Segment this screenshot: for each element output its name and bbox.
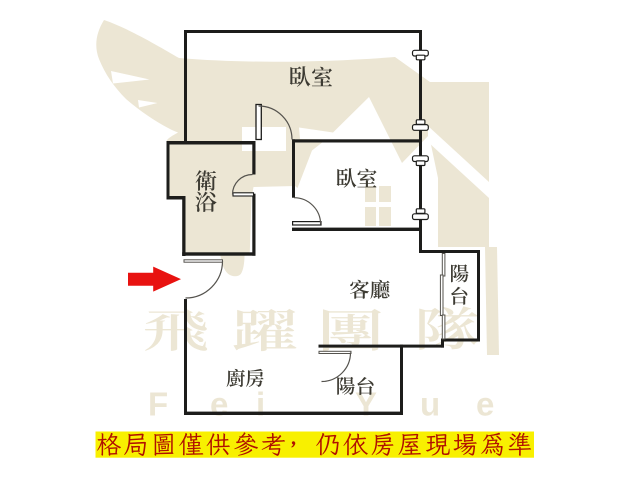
- svg-text:F: F: [148, 386, 168, 423]
- svg-text:e: e: [476, 386, 494, 423]
- svg-text:Y: Y: [355, 386, 377, 423]
- svg-text:e: e: [210, 386, 228, 423]
- svg-text:i: i: [256, 386, 265, 423]
- svg-text:u: u: [420, 386, 440, 423]
